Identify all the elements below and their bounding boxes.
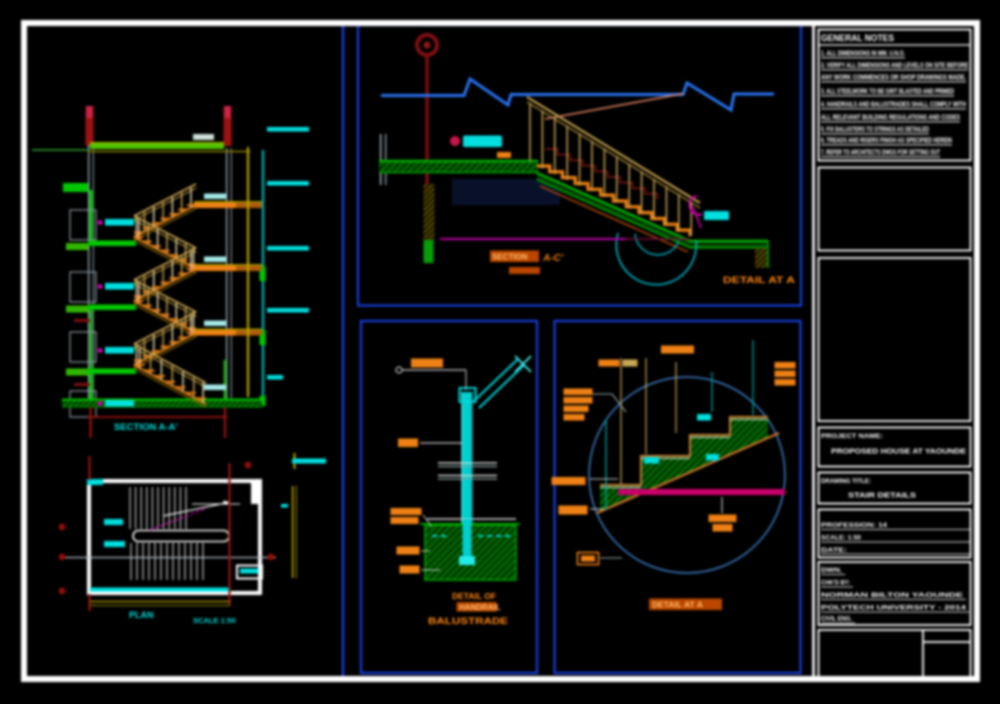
svg-text:NORMAN BILTON YAOUNDE: NORMAN BILTON YAOUNDE [821,592,964,599]
svg-text:STAIR DETAILS: STAIR DETAILS [848,491,916,500]
svg-text:DWN.: DWN. [821,567,842,574]
svg-text:POLYTECH UNIVERSITY - 2014: POLYTECH UNIVERSITY - 2014 [821,605,966,612]
svg-text:CHK'D BY:: CHK'D BY: [821,580,850,587]
svg-text:6. TREADS AND RISERS FINISH A: 6. TREADS AND RISERS FINISH AS SPECIFIED… [821,138,952,145]
svg-text:ANY WORK COMMENCES OR SHOP DRA: ANY WORK COMMENCES OR SHOP DRAWINGS MADE… [821,75,966,82]
svg-text:PLAN: PLAN [129,610,154,620]
svg-text:SCALE 1:50: SCALE 1:50 [193,616,236,625]
svg-text:SECTION: SECTION [492,253,528,262]
svg-text:HANDRAIL: HANDRAIL [459,603,501,612]
svg-text:PROJECT NAME:: PROJECT NAME: [821,433,883,440]
svg-text:3. ALL STEELWORK TO BE GRIT B: 3. ALL STEELWORK TO BE GRIT BLASTED AND … [821,89,954,96]
svg-text:GENERAL NOTES: GENERAL NOTES [821,33,894,43]
svg-text:7. REFER TO ARCHITECTS DWGS F: 7. REFER TO ARCHITECTS DWGS FOR SETTING … [821,150,940,157]
svg-text:ALL RELEVANT BUILDING REGULATI: ALL RELEVANT BUILDING REGULATIONS AND CO… [821,115,960,122]
svg-text:DRAWING TITLE:: DRAWING TITLE: [821,478,871,485]
svg-text:4. HANDRAILS AND BALUSTRADES: 4. HANDRAILS AND BALUSTRADES SHALL COMPL… [821,102,966,109]
svg-text:BALUSTRADE: BALUSTRADE [428,616,508,626]
svg-text:DATE:: DATE: [821,547,847,554]
svg-text:SCALE: 1:50: SCALE: 1:50 [821,535,861,542]
svg-text:PROFESSION: 14: PROFESSION: 14 [821,522,887,529]
svg-text:DETAIL AT A: DETAIL AT A [723,275,795,286]
svg-text:DETAIL OF: DETAIL OF [452,591,496,601]
svg-text:5. FIX BALUSTERS TO STRINGS A: 5. FIX BALUSTERS TO STRINGS AS DETAILED [821,127,929,134]
svg-text:1. ALL DIMENSIONS IN MM. U.N.: 1. ALL DIMENSIONS IN MM. U.N.O. [821,51,905,58]
svg-text:CIVIL ENG.: CIVIL ENG. [821,616,852,623]
svg-text:DETAIL AT A: DETAIL AT A [652,600,703,610]
svg-text:2. VERIFY ALL DIMENSIONS AND: 2. VERIFY ALL DIMENSIONS AND LEVELS ON S… [821,63,968,70]
svg-text:SECTION A-A': SECTION A-A' [114,422,178,433]
svg-text:A-C': A-C' [542,253,564,264]
svg-text:PROPOSED HOUSE AT YAOUNDE: PROPOSED HOUSE AT YAOUNDE [831,447,966,456]
